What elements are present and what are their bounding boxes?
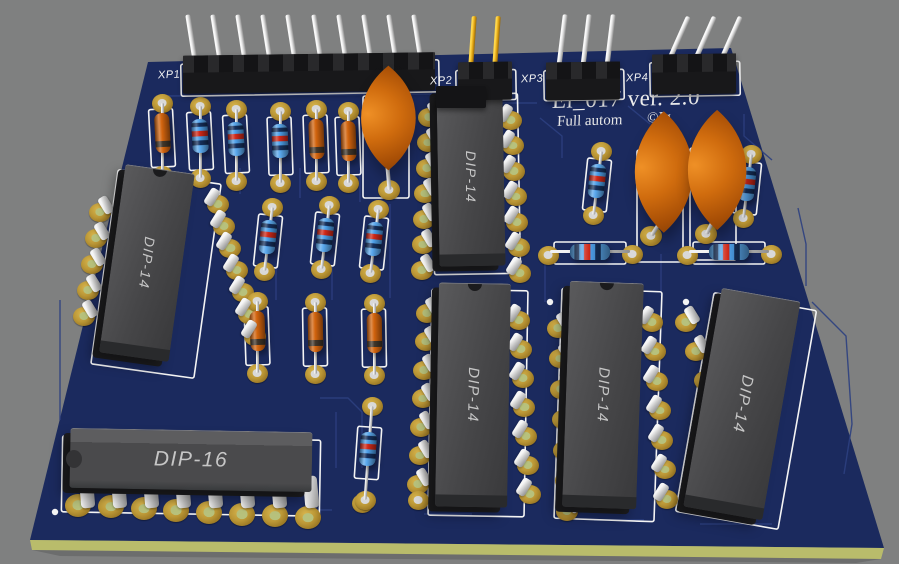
resistor-blue-horizontal <box>570 244 610 260</box>
header-label-xp1: XP1 <box>157 69 181 82</box>
resistor-blue <box>587 163 606 198</box>
resistor-orange <box>153 113 170 154</box>
header-label-xp4: XP4 <box>625 72 649 85</box>
header-pin-bumps <box>652 53 736 72</box>
header-block <box>546 61 620 100</box>
chip-pin1-notch <box>600 283 614 290</box>
chip-front-face <box>439 253 505 266</box>
capacitor-body <box>688 110 746 230</box>
resistor-blue-horizontal <box>709 244 749 260</box>
resistor-blue <box>315 217 334 252</box>
pad-hole <box>204 507 215 517</box>
solder-pad <box>408 491 429 510</box>
pad-hole <box>414 496 423 504</box>
resistor-blue <box>364 221 383 256</box>
chip-label: DIP-14 <box>594 367 613 423</box>
chip-end-notch <box>66 450 82 468</box>
solder-pad <box>622 245 643 264</box>
solder-pad <box>538 246 559 265</box>
chip-pin1-notch <box>468 284 482 291</box>
header-label-xp2: XP2 <box>429 75 453 88</box>
resistor-blue <box>191 119 209 154</box>
resistor-blue <box>359 431 377 466</box>
header-jumper-block <box>436 86 486 108</box>
chip-label: DIP-16 <box>154 447 229 472</box>
header-pin-bumps <box>458 62 512 80</box>
solder-pad <box>295 506 321 529</box>
chip-label: DIP-14 <box>463 151 479 204</box>
chip-front-face <box>562 495 636 510</box>
resistor-orange <box>307 312 323 352</box>
header-block <box>652 53 736 94</box>
resistor-blue <box>271 124 288 159</box>
pad-hole <box>269 511 280 521</box>
solder-pad <box>761 245 782 264</box>
solder-pad <box>677 246 698 265</box>
resistor-orange <box>366 313 382 353</box>
chip-front-face <box>435 494 507 507</box>
resistor-orange <box>308 119 324 159</box>
resistor-orange <box>340 121 356 161</box>
pad-hole <box>237 509 248 519</box>
resistor-blue <box>258 219 277 254</box>
header-label-xp3: XP3 <box>520 73 544 86</box>
pcb-3d-viewport[interactable]: El_017 ver. 2.0 Full autom ©Ig DIP-14DIP… <box>0 0 899 564</box>
header-pin-bumps <box>546 61 620 79</box>
resistor-blue <box>227 122 245 157</box>
chip-pin1-notch <box>152 169 167 178</box>
chip-label: DIP-14 <box>464 367 482 423</box>
pad-hole <box>302 513 313 523</box>
capacitor-body <box>635 111 693 233</box>
components-layer: DIP-14DIP-14DIP-14DIP-14DIP-14DIP-16XP1X… <box>0 0 899 564</box>
capacitor-body <box>361 66 415 170</box>
